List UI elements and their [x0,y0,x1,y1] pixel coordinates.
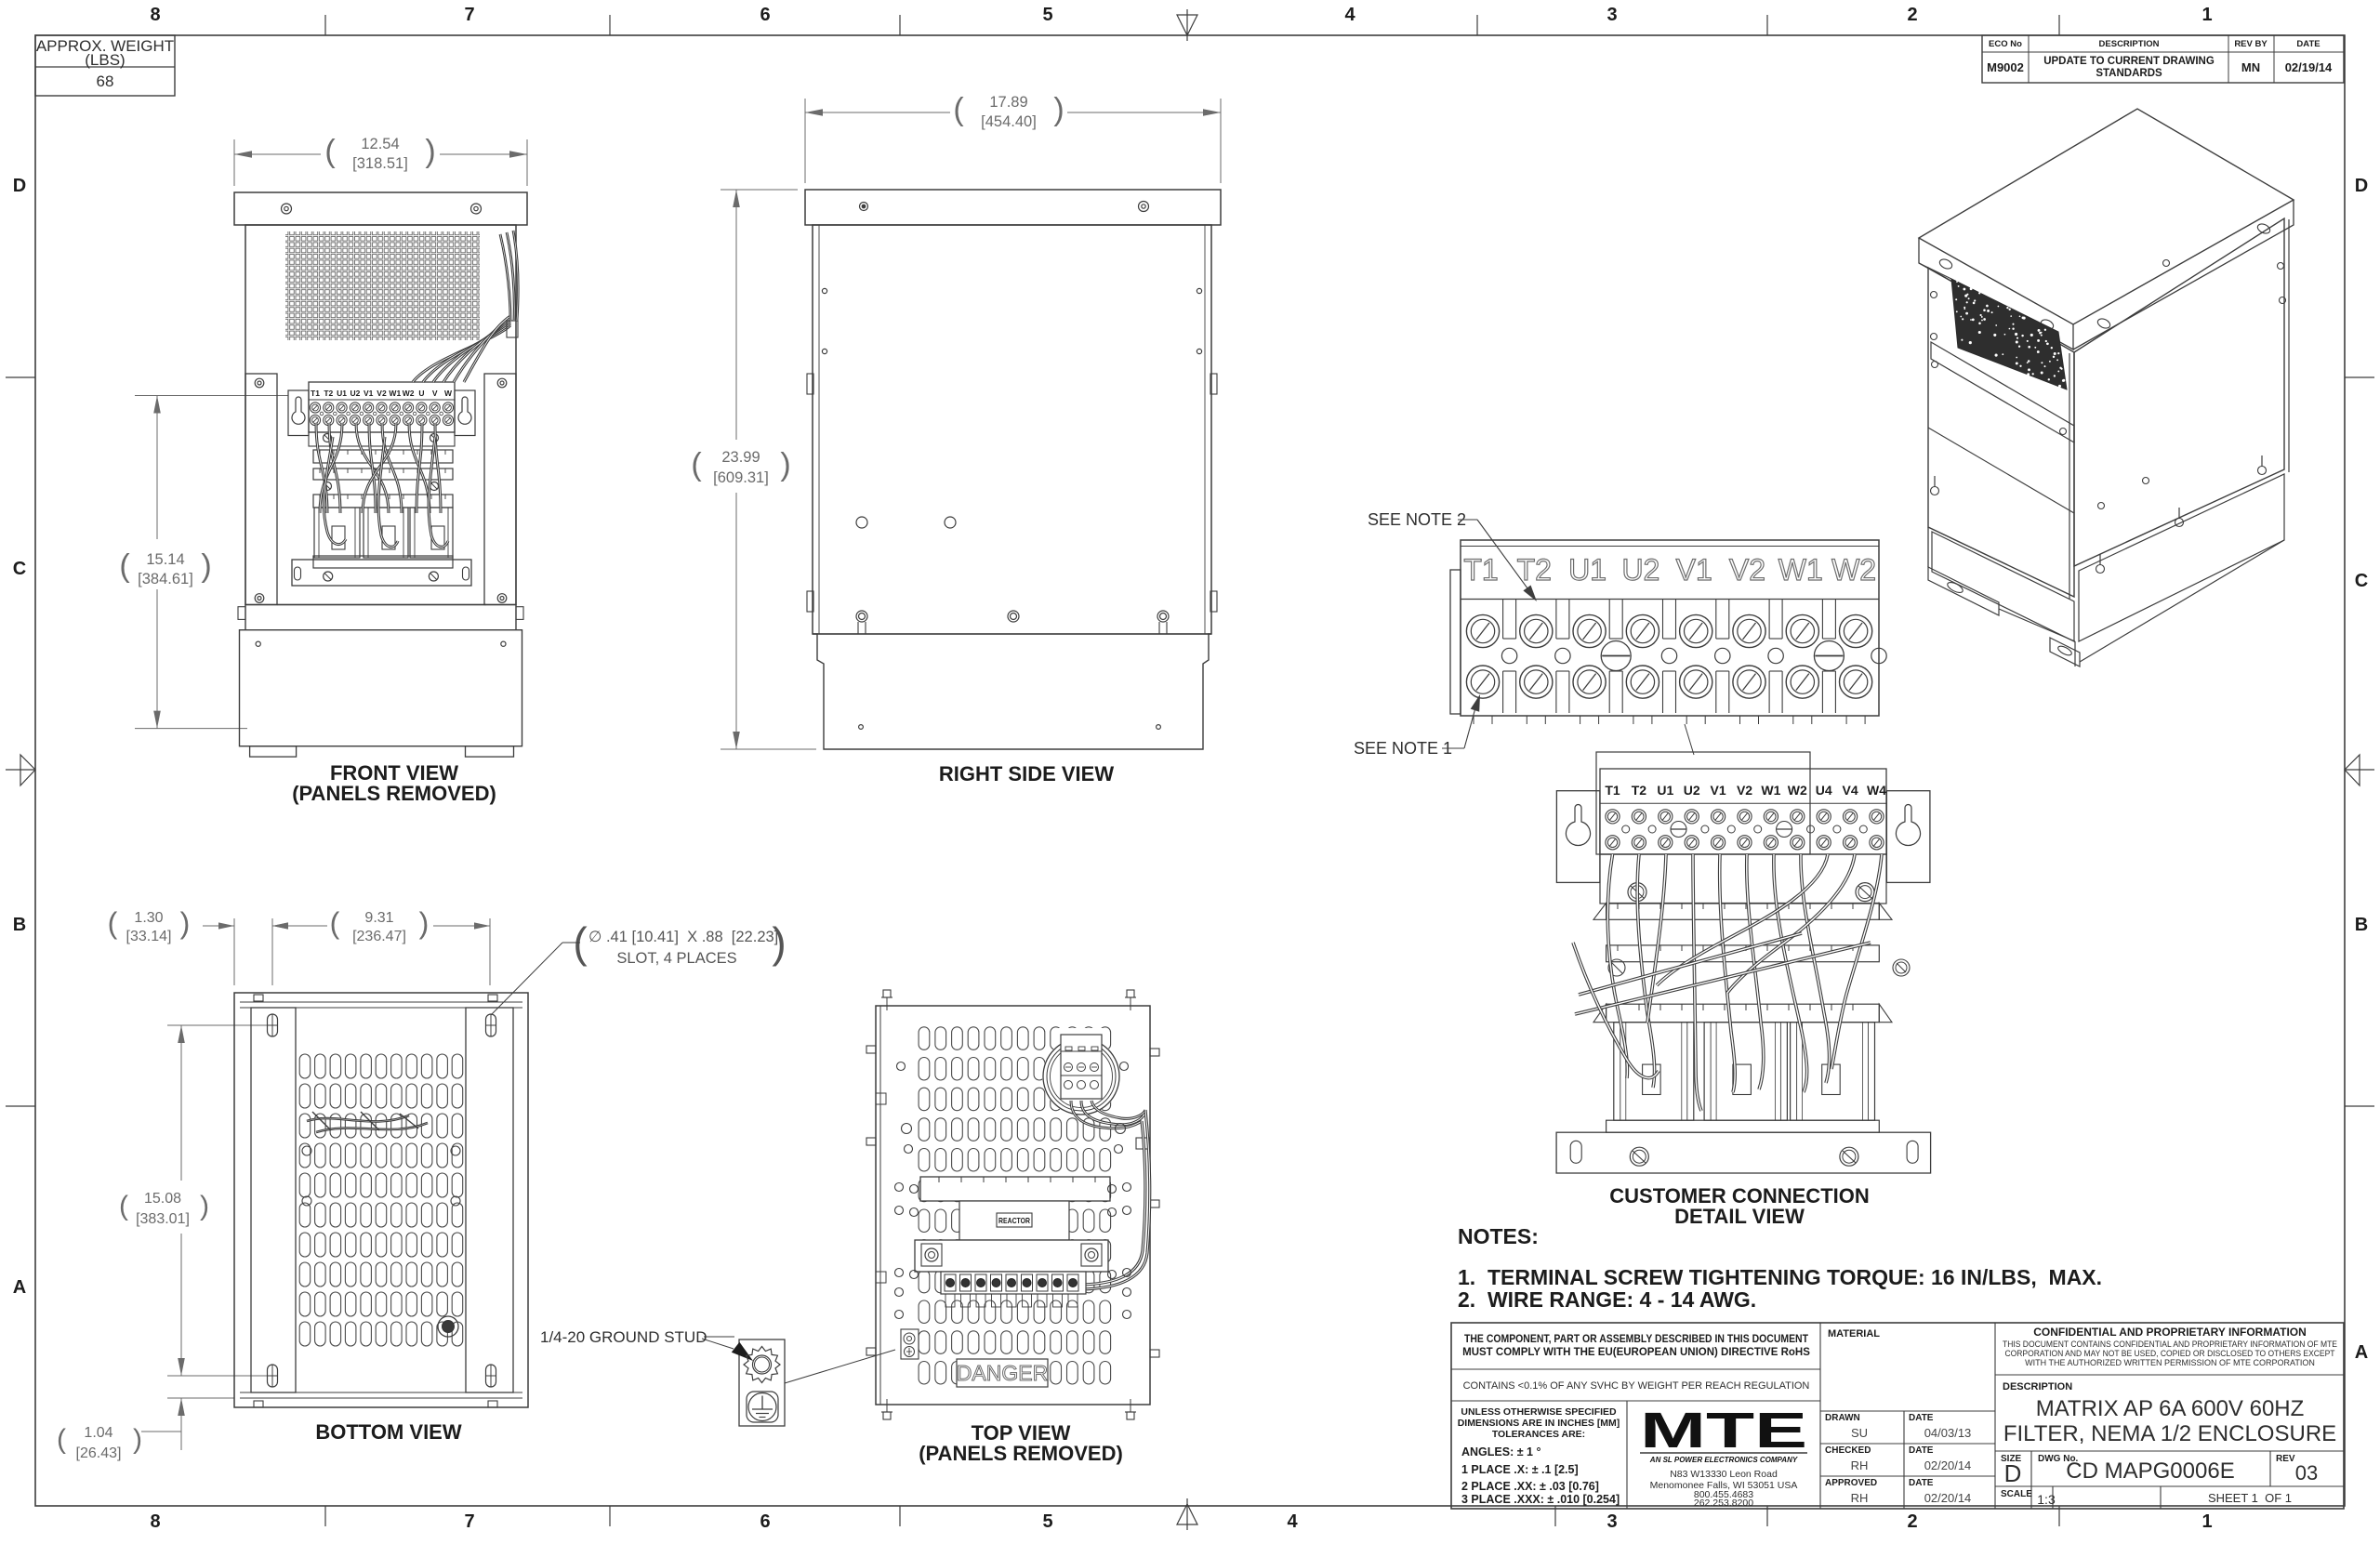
svg-text:V4: V4 [1843,783,1858,798]
svg-text:(: ( [57,1424,66,1455]
svg-text:2. WIRE RANGE: 4 - 14 AWG.: 2. WIRE RANGE: 4 - 14 AWG. [1458,1287,1756,1312]
svg-text:SHEET 1 OF 1: SHEET 1 OF 1 [2208,1491,2292,1505]
svg-text:T2: T2 [1632,783,1647,798]
svg-text:8: 8 [150,1511,160,1532]
svg-text:): ) [201,548,211,584]
svg-text:(: ( [330,906,340,940]
svg-text:4: 4 [1287,1511,1298,1532]
svg-text:6: 6 [760,1511,770,1532]
svg-text:SCALE: SCALE [2001,1489,2032,1499]
svg-text:MN: MN [2241,60,2260,74]
svg-text:[33.14]: [33.14] [126,929,172,944]
svg-text:DATE: DATE [1909,1445,1934,1456]
svg-text:(PANELS REMOVED): (PANELS REMOVED) [292,782,496,805]
svg-text:[236.47]: [236.47] [352,929,406,944]
svg-text:V1: V1 [1711,783,1726,798]
svg-text:02/19/14: 02/19/14 [2285,60,2333,74]
svg-text:SEE NOTE 1: SEE NOTE 1 [1354,739,1452,758]
svg-text:02/20/14: 02/20/14 [1924,1458,1972,1472]
svg-text:CORPORATION AND MAY NOT BE USE: CORPORATION AND MAY NOT BE USED, COPIED … [2005,1349,2335,1358]
svg-text:(PANELS REMOVED): (PANELS REMOVED) [919,1442,1123,1465]
svg-text:REACTOR: REACTOR [998,1216,1030,1225]
svg-text:3 PLACE .XXX: ± .010 [0.254]: 3 PLACE .XXX: ± .010 [0.254] [1461,1493,1620,1506]
svg-text:1. TERMINAL SCREW TIGHTENING: 1. TERMINAL SCREW TIGHTENING TORQUE: 16 … [1458,1265,2102,1289]
svg-text:): ) [133,1424,142,1455]
svg-text:[454.40]: [454.40] [981,113,1037,130]
svg-text:DRAWN: DRAWN [1825,1413,1860,1423]
svg-text:N83 W13330 Leon Road: N83 W13330 Leon Road [1670,1469,1778,1480]
svg-text:(: ( [119,548,130,584]
svg-text:V2: V2 [1737,783,1752,798]
svg-text:ANGLES: ± 1 °: ANGLES: ± 1 ° [1461,1445,1540,1458]
svg-text:DANGER: DANGER [957,1361,1048,1385]
svg-text:7: 7 [464,5,474,25]
svg-text:): ) [425,134,435,169]
svg-text:AN SL POWER ELECTRONICS COMPAN: AN SL POWER ELECTRONICS COMPANY [1649,1456,1798,1464]
svg-text:W2: W2 [1831,553,1876,587]
svg-text:04/03/13: 04/03/13 [1924,1426,1972,1440]
svg-text:W2: W2 [403,389,415,398]
svg-text:DIMENSIONS ARE IN INCHES [MM]: DIMENSIONS ARE IN INCHES [MM] [1458,1418,1620,1429]
svg-text:W1: W1 [1761,783,1780,798]
svg-text:U1: U1 [1568,553,1606,587]
svg-text:CHECKED: CHECKED [1825,1445,1871,1456]
svg-text:15.08: 15.08 [144,1191,181,1207]
svg-text:1.04: 1.04 [84,1425,112,1441]
svg-text:68: 68 [97,73,114,90]
svg-text:4: 4 [1344,5,1355,25]
svg-text:DESCRIPTION: DESCRIPTION [2099,39,2160,49]
svg-text:∅ .41 [10.41] X .88 [22.23]: ∅ .41 [10.41] X .88 [22.23] [588,929,778,945]
svg-text:U2: U2 [1684,783,1700,798]
svg-text:1.30: 1.30 [134,910,163,926]
svg-text:D: D [2355,176,2368,196]
svg-text:DESCRIPTION: DESCRIPTION [2003,1381,2072,1392]
svg-text:): ) [1053,92,1064,127]
svg-text:): ) [772,918,786,967]
svg-text:[318.51]: [318.51] [352,155,408,172]
svg-text:W2: W2 [1788,783,1807,798]
svg-text:C: C [13,559,26,579]
svg-text:17.89: 17.89 [989,94,1027,111]
svg-text:U: U [418,389,424,398]
svg-text:V2: V2 [377,389,387,398]
svg-text:[26.43]: [26.43] [76,1445,122,1461]
svg-text:[384.61]: [384.61] [138,571,193,587]
svg-text:V1: V1 [1676,553,1712,587]
svg-text:MTE: MTE [1640,1403,1807,1458]
svg-text:TOLERANCES ARE:: TOLERANCES ARE: [1492,1429,1585,1440]
svg-text:2 PLACE .XX: ± .03 [0.76]: 2 PLACE .XX: ± .03 [0.76] [1461,1480,1599,1493]
svg-text:W1: W1 [1778,553,1823,587]
svg-text:M9002: M9002 [1987,60,2024,74]
svg-text:1: 1 [2201,1511,2212,1532]
svg-text:T1: T1 [311,389,320,398]
svg-text:T2: T2 [324,389,333,398]
svg-text:DETAIL VIEW: DETAIL VIEW [1674,1205,1805,1228]
svg-text:C: C [2355,571,2368,591]
svg-text:MATRIX AP 6A 600V 60HZ: MATRIX AP 6A 600V 60HZ [2036,1396,2305,1421]
svg-text:1: 1 [2201,5,2212,25]
svg-text:23.99: 23.99 [721,449,760,466]
svg-text:D: D [13,176,26,196]
svg-text:T2: T2 [1517,553,1552,587]
svg-text:A: A [13,1277,26,1298]
svg-text:U1: U1 [1657,783,1673,798]
svg-text:D: D [2004,1459,2022,1487]
svg-text:U1: U1 [337,389,347,398]
svg-text:1/4-20 GROUND STUD: 1/4-20 GROUND STUD [540,1328,707,1346]
svg-text:5: 5 [1042,1511,1052,1532]
svg-text:ECO No: ECO No [1989,39,2022,49]
svg-text:(: ( [119,1191,128,1221]
svg-text:[609.31]: [609.31] [713,469,769,486]
svg-text:W: W [444,389,453,398]
svg-text:9.31: 9.31 [364,910,393,926]
svg-text:B: B [13,915,26,935]
svg-text:1 PLACE .X: ± .1 [2.5]: 1 PLACE .X: ± .1 [2.5] [1461,1463,1579,1476]
svg-text:U2: U2 [1621,553,1659,587]
svg-text:BOTTOM VIEW: BOTTOM VIEW [315,1420,461,1444]
svg-text:RH: RH [1851,1491,1869,1505]
svg-text:2: 2 [1907,5,1917,25]
svg-text:RH: RH [1851,1458,1869,1472]
svg-text:5: 5 [1042,5,1052,25]
svg-text:8: 8 [150,5,160,25]
svg-text:[383.01]: [383.01] [136,1211,190,1227]
svg-text:SU: SU [1851,1426,1868,1440]
svg-text:(: ( [953,92,964,127]
svg-text:T1: T1 [1463,553,1498,587]
svg-text:DATE: DATE [2296,39,2320,49]
svg-text:T1: T1 [1605,783,1620,798]
svg-text:V1: V1 [364,389,374,398]
svg-text:2: 2 [1907,1511,1917,1532]
svg-text:(LBS): (LBS) [85,51,125,69]
svg-text:UPDATE TO CURRENT DRAWING: UPDATE TO CURRENT DRAWING [2043,56,2215,67]
svg-text:3: 3 [1606,5,1617,25]
svg-text:NOTES:: NOTES: [1458,1224,1539,1248]
svg-text:): ) [780,447,790,482]
svg-text:(: ( [108,906,118,940]
svg-text:SLOT, 4 PLACES: SLOT, 4 PLACES [616,950,736,967]
svg-text:A: A [2355,1342,2368,1363]
svg-text:1:3: 1:3 [2037,1492,2056,1507]
svg-text:V: V [432,389,438,398]
svg-text:THE COMPONENT, PART OR ASSEMBL: THE COMPONENT, PART OR ASSEMBLY DESCRIBE… [1464,1334,1808,1345]
svg-text:DATE: DATE [1909,1413,1934,1423]
svg-text:U4: U4 [1816,783,1832,798]
svg-text:(: ( [691,447,702,482]
svg-text:U2: U2 [350,389,360,398]
svg-text:02/20/14: 02/20/14 [1924,1491,1972,1505]
svg-text:12.54: 12.54 [361,136,399,152]
svg-text:6: 6 [760,5,770,25]
svg-text:262.253.8200: 262.253.8200 [1694,1498,1753,1509]
svg-text:REV BY: REV BY [2234,39,2268,49]
svg-text:WITH THE AUTHORIZED WRITTEN PE: WITH THE AUTHORIZED WRITTEN PERMISSION O… [2025,1358,2315,1367]
svg-text:UNLESS OTHERWISE SPECIFIED: UNLESS OTHERWISE SPECIFIED [1461,1406,1617,1418]
svg-text:MUST COMPLY WITH THE EU(EUROPE: MUST COMPLY WITH THE EU(EUROPEAN UNION) … [1462,1347,1810,1358]
svg-text:): ) [200,1191,209,1221]
svg-text:SEE NOTE 2: SEE NOTE 2 [1368,510,1466,529]
svg-text:RIGHT SIDE VIEW: RIGHT SIDE VIEW [939,762,1114,785]
svg-text:(: ( [324,134,336,169]
svg-text:DATE: DATE [1909,1478,1934,1488]
svg-text:B: B [2355,915,2368,935]
svg-text:STANDARDS: STANDARDS [2096,68,2162,79]
svg-text:03: 03 [2295,1461,2318,1485]
svg-text:W1: W1 [389,389,401,398]
svg-text:THIS DOCUMENT CONTAINS CONFIDE: THIS DOCUMENT CONTAINS CONFIDENTIAL AND … [2003,1339,2337,1349]
svg-text:FILTER, NEMA 1/2 ENCLOSURE: FILTER, NEMA 1/2 ENCLOSURE [2003,1421,2336,1446]
svg-text:CONTAINS <0.1% OF ANY SVHC BY: CONTAINS <0.1% OF ANY SVHC BY WEIGHT PER… [1463,1380,1810,1392]
svg-text:): ) [419,906,430,940]
svg-text:V2: V2 [1729,553,1765,587]
svg-text:APPROVED: APPROVED [1825,1478,1877,1488]
svg-text:CD MAPG0006E: CD MAPG0006E [2066,1458,2234,1484]
svg-text:REV: REV [2276,1454,2295,1464]
svg-text:): ) [180,906,191,940]
svg-text:CONFIDENTIAL AND PROPRIETARY I: CONFIDENTIAL AND PROPRIETARY INFORMATION [2033,1326,2307,1339]
svg-text:W4: W4 [1867,783,1886,798]
svg-text:MATERIAL: MATERIAL [1828,1328,1880,1339]
svg-text:3: 3 [1606,1511,1617,1532]
svg-text:7: 7 [464,1511,474,1532]
svg-text:15.14: 15.14 [146,551,184,568]
